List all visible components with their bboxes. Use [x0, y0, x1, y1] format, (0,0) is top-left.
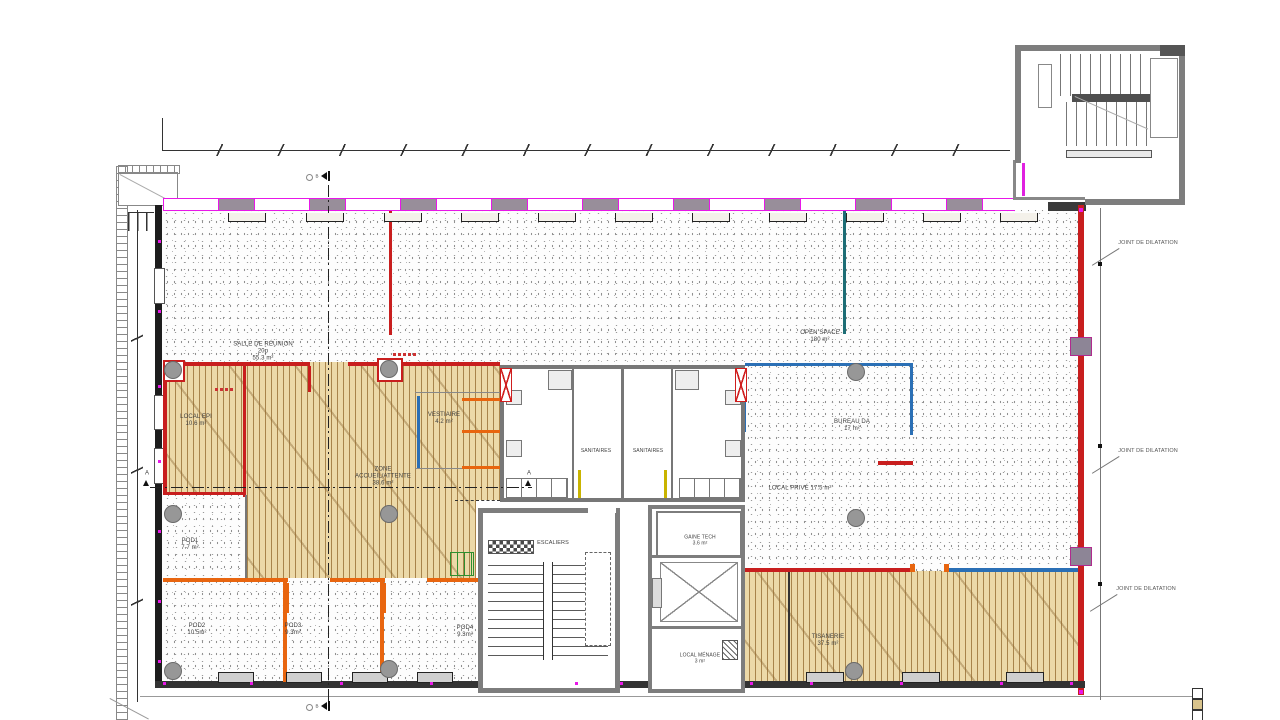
- ext-stair-door: [1038, 64, 1052, 108]
- south-window-6: [1006, 672, 1044, 683]
- exterior-cladding-strip: [116, 166, 128, 720]
- elevator-partition-2: [652, 626, 741, 629]
- joint-leader-3: [1090, 594, 1118, 612]
- room-area: 9.3m²: [457, 632, 474, 639]
- column-6: [164, 662, 182, 680]
- sanitary-pmr-door-swing-l: [522, 420, 558, 456]
- room-name: LOCAL EPI: [180, 414, 212, 421]
- window-sill-3: [461, 213, 499, 222]
- room-name: SALLE DE RÉUNION: [233, 342, 293, 349]
- room-area: 10.5m²: [187, 630, 206, 637]
- magenta-dot-s0: [163, 682, 166, 685]
- menage-equipment: [722, 640, 738, 660]
- window-sill-7: [769, 213, 807, 222]
- room-name: POD1: [181, 538, 199, 545]
- room-name: POD3: [285, 623, 302, 630]
- legend-square-2: [1192, 699, 1203, 710]
- room-name: POD2: [187, 623, 206, 630]
- column-8: [845, 662, 863, 680]
- section-marker-a-center: A: [524, 471, 536, 487]
- tisanerie-wall-top-red: [743, 568, 915, 572]
- section-b-label: B: [315, 173, 318, 178]
- window-sill-2: [384, 213, 422, 222]
- vestiaire-glass-partition: [417, 396, 420, 468]
- south-window-5: [902, 672, 940, 683]
- floor-plan-canvas: B B A A JOINT DE DILATATION JOINT DE DIL…: [0, 0, 1280, 720]
- elevator-shaft: [660, 562, 738, 622]
- column-0: [164, 361, 182, 379]
- room-area: 180 m²: [800, 337, 840, 344]
- magenta-dot-s5: [620, 682, 623, 685]
- canopy-hatch-band: [118, 165, 180, 174]
- sanitary-cabinet-r: [679, 478, 741, 498]
- legend-square-3: [1192, 710, 1203, 720]
- window-sill-0: [228, 213, 266, 222]
- section-marker-b-top: B: [306, 172, 336, 182]
- ext-stair-wall-left: [1015, 45, 1021, 163]
- magenta-dot-s9: [1000, 682, 1003, 685]
- riser-box-left: [500, 368, 512, 402]
- sanitary-pmr-door-swing-r: [686, 420, 722, 456]
- zone-accueil-wall-top-right: [348, 362, 500, 366]
- room-label-gaine-tech: GAINE TECH 3.6 m²: [684, 535, 715, 547]
- marker-arrow: [321, 172, 327, 180]
- column-5: [847, 509, 865, 527]
- ext-stair-wall-bottom: [1085, 199, 1185, 205]
- marker-arrow: [143, 480, 149, 486]
- ext-stair-corner-fill: [1160, 45, 1185, 56]
- pod-wall-horizontal-3: [427, 578, 480, 582]
- zone-accueil-wall-top-left: [163, 362, 310, 366]
- room-label-local-prive: LOCAL PRIVÉ 17.5 m²: [768, 486, 831, 493]
- marker-arrow: [525, 480, 531, 486]
- section-line-b: [328, 185, 329, 710]
- magenta-dot-s4: [575, 682, 578, 685]
- room-area: 17 m²: [834, 426, 870, 433]
- stair-stringer: [543, 562, 553, 660]
- east-wall-connector-1: [1070, 337, 1092, 356]
- room-area: 37.5 m²: [812, 641, 845, 648]
- section-b-label: B: [315, 703, 318, 708]
- room-area: 38.6 m²: [355, 480, 411, 487]
- zone-limit-dashed: [455, 500, 500, 501]
- elevator-partition-1: [652, 555, 741, 558]
- sanitary-fixture-3: [506, 440, 522, 457]
- section-marker-a-left: A: [142, 471, 154, 487]
- sanitary-partition-l: [572, 368, 574, 499]
- marker-circle: [306, 174, 313, 181]
- joint-tick-3: [1098, 582, 1102, 586]
- column-7: [380, 660, 398, 678]
- column-4: [380, 505, 398, 523]
- marker-bar: [328, 171, 330, 181]
- room-label-bureau-da: BUREAU DA 17 m²: [834, 419, 870, 433]
- room-area: 9.3m²: [285, 630, 302, 637]
- section-marker-b-bottom: B: [306, 702, 336, 712]
- tisanerie-door-swing: [914, 538, 945, 569]
- ext-stair-wall-right: [1179, 45, 1185, 205]
- teal-partition: [843, 211, 846, 334]
- room-area: 10.6 m²: [180, 421, 212, 428]
- east-reference-line: [1100, 208, 1101, 700]
- magenta-dot-w6: [158, 660, 161, 663]
- bureau-da-wall-top: [745, 363, 913, 366]
- stair-demolition-dashed: [585, 552, 611, 646]
- window-sill-5: [615, 213, 653, 222]
- section-a-label: A: [527, 471, 531, 478]
- room-label-sanitaires-left: SANITAIRES: [581, 449, 611, 455]
- salle-reunion-wall: [389, 211, 392, 335]
- vestiaire-wall-top: [415, 392, 500, 393]
- ext-stair-flight-upper: [1060, 54, 1150, 96]
- west-window-1: [154, 268, 165, 304]
- magenta-dot-s10: [1070, 682, 1073, 685]
- north-facade-window-band: [163, 198, 1015, 211]
- pod-door-swing-1: [289, 583, 319, 613]
- bureau-da-door-swing: [877, 428, 910, 461]
- ground-line: [140, 696, 1196, 697]
- room-area: 55.3 m²: [233, 355, 293, 362]
- bureau-da-wall-right: [910, 363, 913, 435]
- pod1-door-swing: [218, 553, 246, 581]
- room-name: TISANERIE: [812, 634, 845, 641]
- room-label-pod3: POD3 9.3m²: [285, 623, 302, 637]
- magenta-dot-s6: [750, 682, 753, 685]
- east-wall-red: [1078, 205, 1084, 695]
- magenta-dot-e1: [1079, 690, 1083, 694]
- room-label-open-space: OPEN SPACE 180 m²: [800, 330, 840, 344]
- sanitary-door-swing-r: [638, 470, 664, 496]
- window-sill-10: [1000, 213, 1038, 222]
- tisanerie-wood-floor: [743, 571, 1080, 682]
- window-sill-4: [538, 213, 576, 222]
- stair-tactile-strip: [488, 540, 534, 554]
- joint-label-2: JOINT DE DILATATION: [1118, 448, 1178, 454]
- room-label-vestiaire: VESTIAIRE 4.2 m²: [428, 412, 460, 426]
- tisanerie-wall-top-blue: [947, 568, 1078, 572]
- elevator-mechanism: [652, 578, 662, 608]
- column-2: [847, 363, 865, 381]
- red-annotation-mark-1: [393, 353, 417, 356]
- corner-door-swing: [1024, 164, 1057, 197]
- magenta-dot-w1: [158, 310, 161, 313]
- joint-label-1: JOINT DE DILATATION: [1118, 240, 1178, 246]
- section-a-label: A: [145, 471, 149, 478]
- pod-wall-horizontal-2: [330, 578, 385, 582]
- window-sill-1: [306, 213, 344, 222]
- magenta-dot-w4: [158, 530, 161, 533]
- stair-door-swing: [588, 513, 616, 541]
- room-name-line2: ACCUEIL/ATTENTE: [355, 474, 411, 481]
- marker-arrow: [321, 702, 327, 710]
- room-name: VESTIAIRE: [428, 412, 460, 419]
- joint-label-3: JOINT DE DILATATION: [1116, 586, 1176, 592]
- room-label-pod4: POD4 9.3m²: [457, 625, 474, 639]
- service-door-swing: [418, 548, 448, 578]
- room-label-salle-reunion: SALLE DE RÉUNION 20p 55.3 m²: [233, 342, 293, 363]
- room-label-local-menage: LOCAL MÉNAGE 3 m²: [680, 653, 720, 665]
- magenta-dot-w0: [158, 240, 161, 243]
- room-label-escaliers: ESCALIERS: [537, 540, 569, 546]
- vestiaire-bench-3: [462, 466, 504, 469]
- window-sill-6: [692, 213, 730, 222]
- sanitary-fixture-1: [548, 370, 572, 390]
- room-label-zone-accueil: ZONE ACCUEIL/ATTENTE 38.6 m²: [355, 467, 411, 488]
- joint-tick-2: [1098, 444, 1102, 448]
- facade-corner-wall-v: [1013, 160, 1016, 200]
- south-window-3: [417, 672, 453, 683]
- room-name: OPEN SPACE: [800, 330, 840, 337]
- south-window-1: [286, 672, 322, 683]
- room-name: POD4: [457, 625, 474, 632]
- joint-tick-1: [1098, 262, 1102, 266]
- room-label-sanitaires-right: SANITAIRES: [633, 449, 663, 455]
- room-area: 4.2 m²: [428, 419, 460, 426]
- east-wall-connector-2: [1070, 547, 1092, 566]
- room-label-pod1: POD1 7.7 m²: [181, 538, 199, 552]
- left-dimension-ticks: [131, 210, 143, 702]
- magenta-dot-w5: [158, 600, 161, 603]
- magenta-dot-s8: [900, 682, 903, 685]
- sanitary-door-leaf-r: [664, 470, 667, 498]
- marker-bar: [328, 701, 330, 711]
- facade-corner-wall: [1013, 197, 1085, 200]
- local-epi-wall-right: [243, 362, 246, 497]
- room-label-pod2: POD2 10.5m²: [187, 623, 206, 637]
- top-dimension-extension: [162, 118, 163, 150]
- vestiaire-bench-1: [462, 398, 504, 401]
- sanitary-door-swing-l: [580, 470, 606, 496]
- tisanerie-partition: [788, 572, 790, 682]
- ext-stair-lower-edge: [1066, 150, 1152, 158]
- south-window-0: [218, 672, 254, 683]
- vestiaire-bench-2: [462, 430, 504, 433]
- magenta-dot-e0: [1079, 208, 1083, 212]
- top-dimension-ticks: [162, 144, 1010, 156]
- room-label-local-epi: LOCAL EPI 10.6 m²: [180, 414, 212, 428]
- sanitary-center-wall: [621, 368, 624, 499]
- room-area: 3.6 m²: [684, 541, 715, 547]
- room-name: BUREAU DA: [834, 419, 870, 426]
- sanitary-partition-r: [671, 368, 673, 499]
- room-name-line1: ZONE: [355, 467, 411, 474]
- red-annotation-mark-2: [215, 388, 233, 391]
- column-1: [380, 360, 398, 378]
- magenta-dot-s7: [810, 682, 813, 685]
- window-sill-8: [846, 213, 884, 222]
- magenta-dot-w2: [158, 385, 161, 388]
- room-area: 7.7 m²: [181, 545, 199, 552]
- bureau-da-wall-bottom: [878, 461, 913, 465]
- joint-leader-2: [1092, 456, 1120, 474]
- room-area: 3 m²: [680, 659, 720, 665]
- marker-circle: [306, 704, 313, 711]
- local-epi-door-swing: [222, 390, 246, 414]
- section-line-a: [150, 487, 532, 488]
- room-label-tisanerie: TISANERIE 37.5 m²: [812, 634, 845, 648]
- magenta-dot-w3: [158, 460, 161, 463]
- service-box-green: [450, 552, 474, 576]
- room-capacity: 20p: [233, 349, 293, 356]
- riser-box-right: [735, 368, 747, 402]
- pod-door-swing-2: [386, 583, 416, 613]
- legend-square-1: [1192, 688, 1203, 699]
- sanitary-fixture-6: [725, 440, 741, 457]
- joint-leader-1: [1092, 248, 1120, 266]
- magenta-dot-s2: [340, 682, 343, 685]
- column-3: [164, 505, 182, 523]
- ext-stair-well: [1150, 58, 1178, 138]
- local-epi-wall-bottom: [163, 492, 246, 495]
- magenta-dot-s3: [430, 682, 433, 685]
- magenta-dot-s1: [250, 682, 253, 685]
- sanitary-fixture-4: [675, 370, 699, 390]
- window-sill-9: [923, 213, 961, 222]
